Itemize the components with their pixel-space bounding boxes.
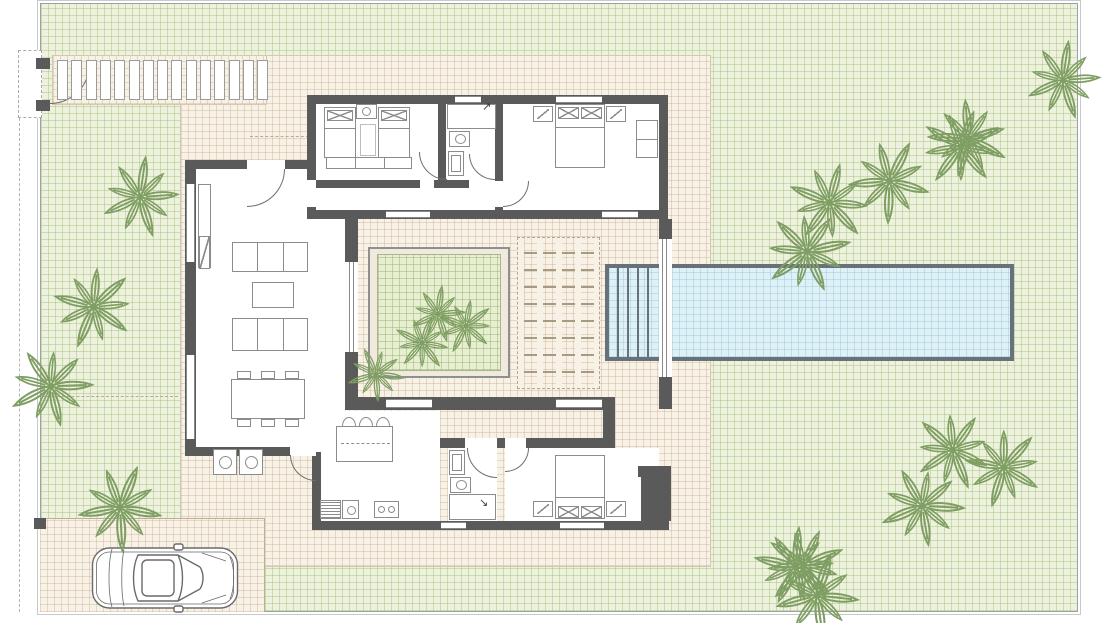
stepping-stone-11 [200, 60, 211, 100]
palm-tree-3 [35, 280, 142, 387]
coffee-table [252, 282, 294, 308]
stepping-stone-2 [71, 60, 82, 100]
chair-6 [285, 419, 299, 427]
bed-double-2-glyph-2 [581, 107, 602, 119]
sofa-1-glyph-1 [257, 243, 258, 271]
window-west-2 [186, 355, 195, 439]
glass-terrace [662, 239, 667, 377]
stepping-stone-9 [171, 60, 182, 100]
stove [374, 501, 399, 518]
sink-2 [449, 450, 465, 475]
bed-double-3-glyph-1 [558, 506, 579, 518]
nightstand-2-glyph-1 [537, 109, 549, 119]
swimming-pool-glyph-4 [647, 268, 649, 357]
bed-twin-a-glyph-2 [325, 128, 355, 129]
window-south-1 [441, 522, 466, 529]
sink-2-glyph-1 [452, 454, 462, 471]
stepping-stone-5 [114, 60, 125, 100]
dining-table [231, 379, 305, 419]
nightstand-5-glyph-1 [610, 504, 622, 514]
wall-south [312, 521, 669, 530]
doorgap-bed3 [505, 438, 526, 448]
swimming-pool-glyph-3 [637, 268, 639, 357]
sofa-2-glyph-1 [257, 319, 258, 350]
bed-double-2-glyph-1 [558, 107, 579, 119]
kitchen-appliance [320, 500, 341, 519]
direction-arrow-2: ↘ [479, 496, 488, 509]
stepping-stone-15 [257, 60, 268, 100]
doorgap-hall-bath1 [469, 180, 495, 188]
kitchen-island-glyph-1 [341, 443, 390, 444]
doorgap-bath2 [465, 438, 497, 448]
toilet-2-glyph-1 [456, 480, 467, 490]
car-top-view [90, 543, 240, 613]
tv [199, 236, 210, 269]
sink-1-glyph-1 [451, 155, 461, 172]
palm-tree-1 [52, 109, 140, 197]
bed-double-3 [555, 455, 605, 519]
nightstand-2 [533, 106, 553, 122]
stove-glyph-2 [388, 506, 395, 513]
toilet-2 [450, 477, 471, 493]
shower-2 [449, 494, 496, 520]
chair-2 [261, 371, 275, 379]
sink-1 [448, 151, 464, 176]
pergola-deck [517, 237, 600, 389]
wall-bed3-east-a [638, 466, 671, 477]
sofa-1-glyph-2 [283, 243, 284, 271]
doorgap-entrance [247, 160, 285, 169]
toilet-1 [449, 131, 470, 147]
bed-twin-b-glyph-1 [381, 110, 407, 121]
floor-plan-canvas: ↗↘ [0, 0, 1110, 623]
gate-post-bottom [36, 100, 50, 111]
window-west-1 [186, 184, 195, 262]
tv-glyph-1 [200, 237, 209, 268]
kitchen-sink [342, 500, 359, 519]
washer-1-glyph-1 [219, 456, 232, 469]
car-mirror-right [174, 606, 183, 612]
nightstand-1 [356, 104, 377, 119]
stepping-stone-8 [157, 60, 168, 100]
stepping-stone-3 [86, 60, 97, 100]
wardrobe-1 [326, 157, 412, 169]
bed-twin-b [378, 107, 410, 158]
wardrobe-2 [636, 120, 658, 158]
doorgap-bed2 [495, 181, 503, 207]
nightstand-3 [606, 106, 626, 122]
glass-courtyard [349, 262, 354, 352]
washer-2-glyph-1 [245, 456, 258, 469]
direction-arrow-1: ↗ [482, 100, 491, 113]
stove-glyph-1 [378, 506, 385, 513]
wall-wing-right [659, 95, 668, 219]
stepping-stone-14 [243, 60, 254, 100]
stepping-stone-7 [143, 60, 154, 100]
window-south-2 [560, 522, 604, 529]
gate-post-top [36, 58, 50, 69]
toilet-1-glyph-1 [455, 134, 466, 144]
bed-double-2-glyph-3 [556, 127, 604, 128]
window-court-north-2 [602, 211, 638, 218]
kitchen-island [336, 426, 393, 462]
nightstand-3-glyph-1 [610, 109, 622, 119]
window-court-south-2 [556, 399, 602, 408]
bed-twin-b-glyph-2 [379, 128, 409, 129]
nightstand-4 [533, 501, 553, 517]
gate-post-drive [34, 518, 46, 529]
nightstand-5 [606, 501, 626, 517]
bed-double-3-glyph-3 [556, 497, 604, 498]
wardrobe-1-glyph-1 [355, 158, 356, 168]
swimming-pool-glyph-1 [617, 268, 619, 357]
bed-twin-a [324, 107, 356, 158]
window-court-south-1 [386, 399, 432, 408]
doorgap-hall-bed1 [420, 180, 434, 188]
stepping-stone-13 [229, 60, 240, 100]
boundary-dashed-line [19, 118, 20, 612]
nightstand-1-glyph-1 [362, 107, 371, 116]
stepping-stone-1 [57, 60, 68, 100]
stepping-stone-12 [214, 60, 225, 100]
sofa-1 [232, 242, 308, 272]
wall-bed3-east-b [641, 477, 671, 521]
chair-1 [237, 371, 251, 379]
window-north-1 [455, 96, 481, 103]
stepping-stone-4 [100, 60, 111, 100]
kitchen-sink-glyph-1 [347, 506, 356, 515]
sofa-2 [232, 318, 308, 351]
stepping-stone-10 [186, 60, 197, 100]
bed-double-2 [555, 104, 605, 168]
car-body [93, 548, 238, 608]
chair-5 [261, 419, 275, 427]
chair-3 [285, 371, 299, 379]
swimming-pool-glyph-2 [627, 268, 629, 357]
rug [360, 124, 376, 156]
washer-1 [213, 449, 237, 475]
wardrobe-1-glyph-2 [384, 158, 385, 168]
car-mirror-left [174, 544, 183, 550]
bed-twin-a-glyph-1 [327, 110, 353, 121]
wardrobe-2-glyph-1 [637, 139, 657, 140]
chair-4 [237, 419, 251, 427]
window-court-north-1 [386, 211, 430, 218]
bed-double-3-glyph-2 [581, 506, 602, 518]
washer-2 [239, 449, 263, 475]
sofa-2-glyph-2 [283, 319, 284, 350]
window-north-2 [556, 96, 602, 103]
nightstand-4-glyph-1 [537, 504, 549, 514]
stepping-stone-6 [129, 60, 140, 100]
